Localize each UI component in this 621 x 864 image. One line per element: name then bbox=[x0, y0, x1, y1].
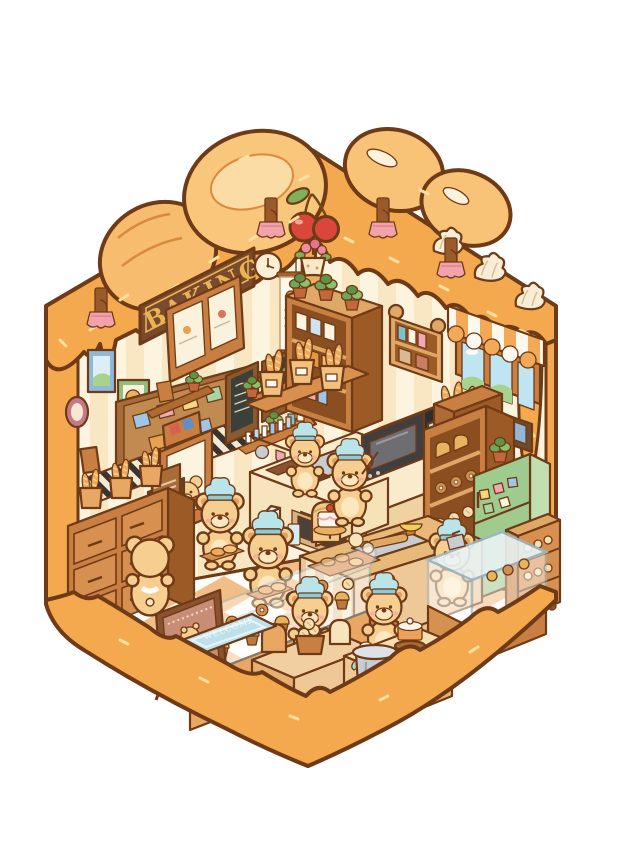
toast-loaf bbox=[330, 620, 350, 644]
dough-ball bbox=[349, 533, 363, 547]
illustration-canvas: { "scene": { "description": "Isometric k… bbox=[0, 0, 621, 864]
bakery-illustration: BAKING bbox=[0, 0, 621, 864]
bear-apron-tie bbox=[142, 588, 158, 591]
bear-at-register bbox=[126, 537, 173, 616]
hanging-pan bbox=[256, 446, 269, 459]
